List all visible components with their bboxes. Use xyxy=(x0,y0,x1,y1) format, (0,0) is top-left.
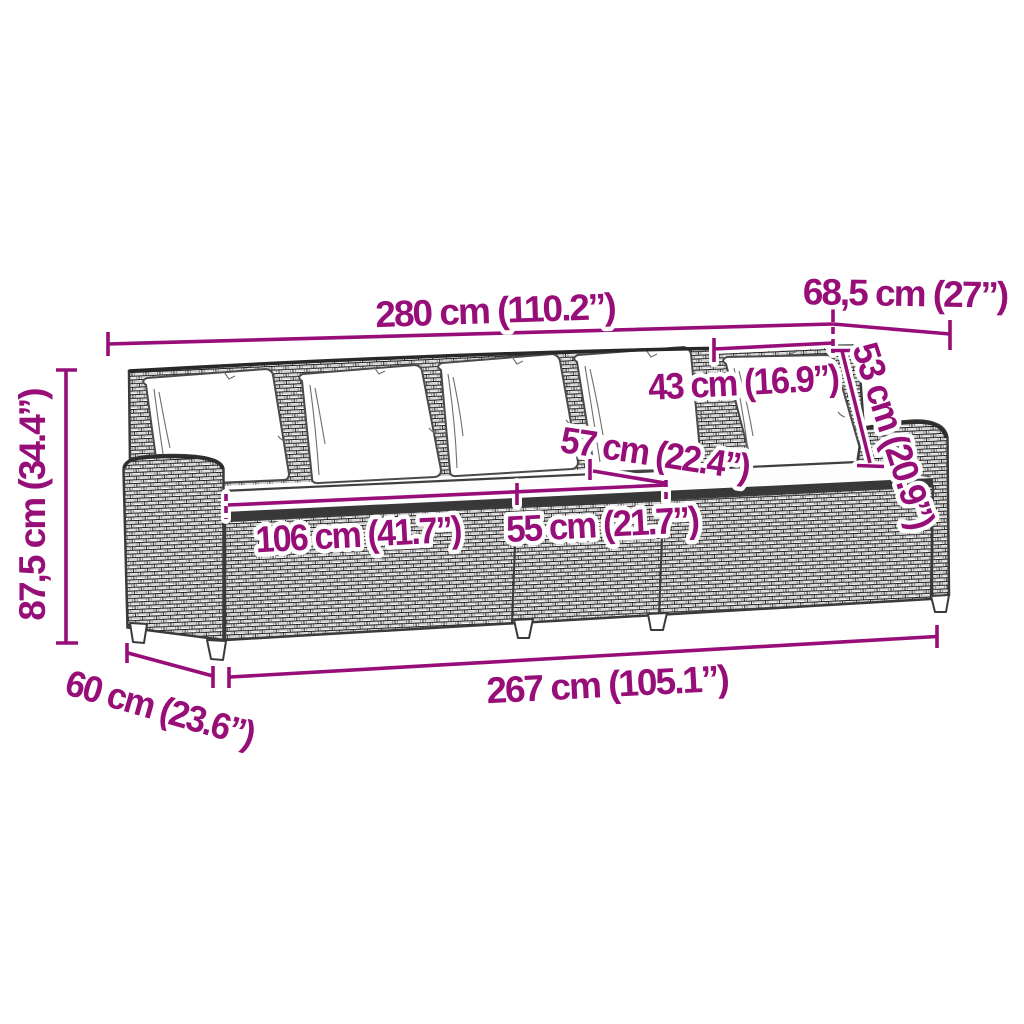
svg-text:87,5 cm (34.4”): 87,5 cm (34.4”) xyxy=(12,389,53,621)
svg-text:68,5 cm (27”): 68,5 cm (27”) xyxy=(802,271,1008,316)
svg-text:280 cm (110.2”): 280 cm (110.2”) xyxy=(375,286,616,335)
